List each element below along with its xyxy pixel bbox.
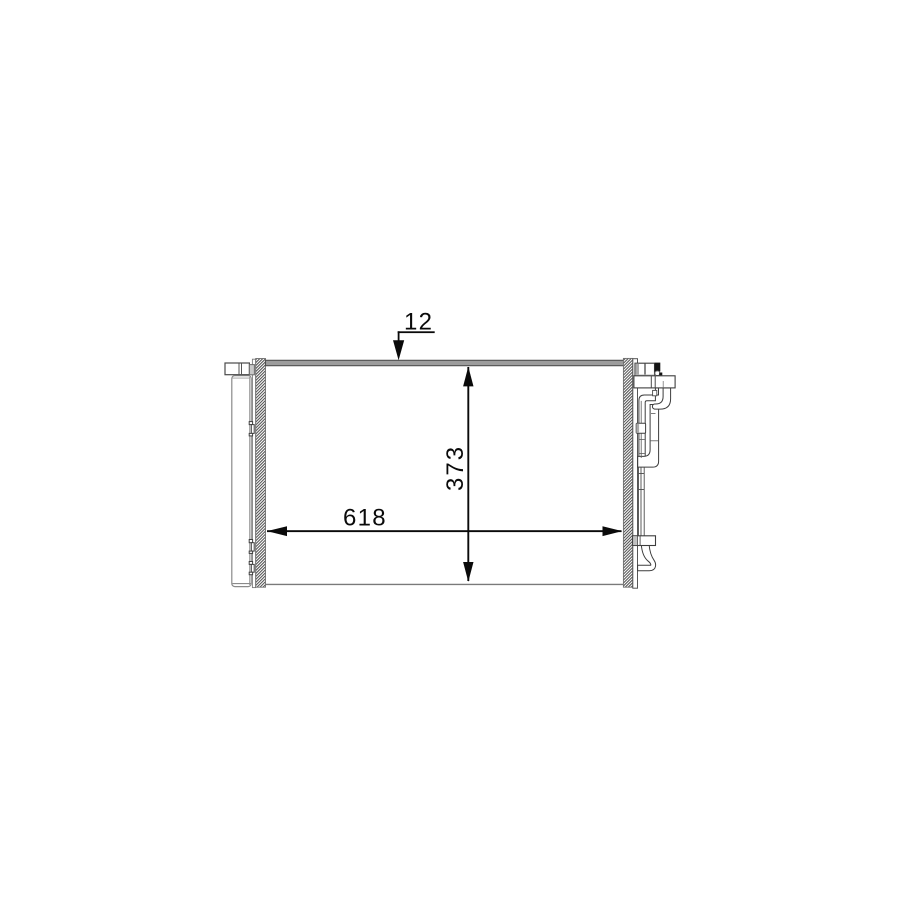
svg-text:12: 12 [404, 308, 433, 335]
svg-text:373: 373 [442, 445, 469, 491]
svg-text:618: 618 [343, 505, 387, 532]
